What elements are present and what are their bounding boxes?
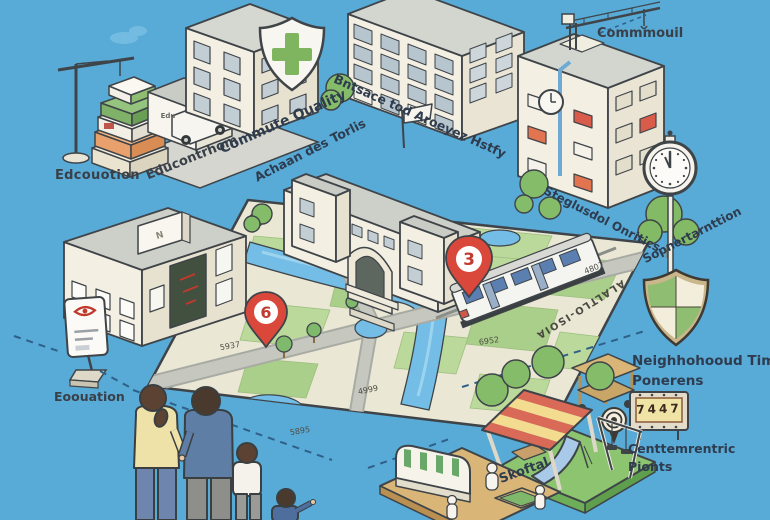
shield-caption-line1: Neighhohooud Time: [632, 352, 770, 372]
shield-caption-line2: Ponerens: [632, 372, 770, 392]
pin-number: 3: [463, 250, 475, 270]
information-signboard: [64, 297, 108, 388]
label-education-bottom: Eoouation: [54, 389, 125, 404]
label-education-left: Edcouotion: [55, 168, 140, 183]
label-crane-caption: Commmouil: [597, 26, 683, 41]
family-figures: [134, 385, 316, 520]
illustration-canvas: 6 3: [0, 0, 770, 520]
mother-figure: [134, 385, 184, 520]
safety-shield-icon: [644, 270, 708, 345]
father-figure: [179, 387, 233, 520]
label-points-caption: Centtemrentric Pionts: [628, 440, 735, 476]
shed-sign-text: Edu: [161, 112, 176, 120]
toddler-figure: [272, 489, 316, 520]
label-shield-caption: Neighhohooud Time Ponerens: [632, 352, 770, 391]
pin-number: 6: [260, 303, 271, 322]
points-caption-line1: Centtemrentric: [628, 440, 735, 458]
scoreboard-digits: 7447: [636, 401, 682, 417]
child-figure: [233, 443, 261, 520]
points-caption-line2: Pionts: [628, 458, 735, 476]
